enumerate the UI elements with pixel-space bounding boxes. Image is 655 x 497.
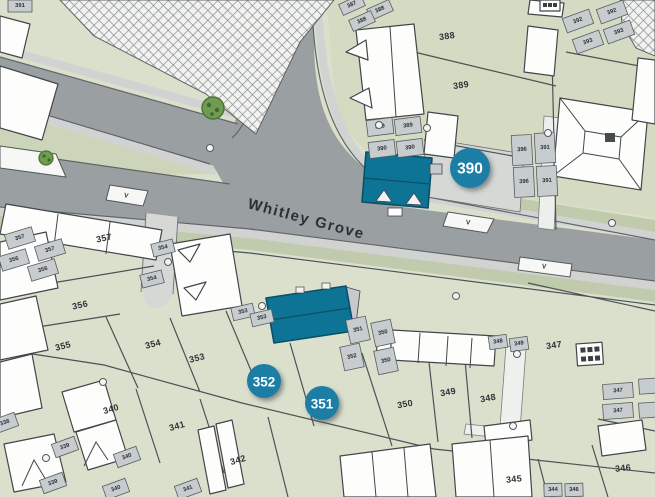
manhole-icon bbox=[510, 423, 517, 430]
manhole-icon bbox=[514, 351, 521, 358]
parking-cell-label: 396 bbox=[511, 134, 533, 165]
parking-cell-label-text: 389 bbox=[403, 122, 414, 129]
parking-cell-label: 347 bbox=[603, 402, 634, 419]
porch bbox=[388, 208, 402, 216]
parking-cell-label-text: 391 bbox=[540, 145, 551, 152]
parking-cell-label: 389 bbox=[394, 116, 422, 135]
manhole-icon bbox=[165, 259, 172, 266]
parking-cell-label: 344 bbox=[544, 483, 562, 497]
badge-label: 390 bbox=[457, 161, 483, 178]
chimney bbox=[605, 133, 615, 142]
manhole-icon bbox=[376, 122, 383, 129]
porch bbox=[296, 287, 304, 293]
bin-store-icon bbox=[576, 342, 603, 366]
parking-cell-label: 349 bbox=[509, 336, 529, 351]
tree-icon bbox=[202, 97, 224, 119]
plot-badge-351[interactable]: 351 bbox=[305, 386, 339, 420]
badge-label: 352 bbox=[253, 375, 276, 390]
parking-cell-label: 390 bbox=[396, 138, 424, 157]
manhole-icon bbox=[259, 303, 266, 310]
plot-badge-352[interactable]: 352 bbox=[247, 364, 281, 398]
parking-cell-label bbox=[639, 402, 655, 418]
manhole-icon bbox=[609, 220, 616, 227]
parking-cell bbox=[639, 402, 655, 418]
parking-cell-label-text: 396 bbox=[517, 147, 528, 154]
building bbox=[424, 112, 458, 158]
bin-store-icon bbox=[540, 0, 560, 11]
parking-cell-label: 391 bbox=[8, 0, 32, 12]
site-plan-canvas: 3913873883883893893903903923923933933963… bbox=[0, 0, 655, 497]
porch bbox=[322, 283, 330, 289]
building bbox=[524, 26, 558, 76]
plot-badge-390[interactable]: 390 bbox=[450, 148, 490, 188]
parking-cell-label bbox=[639, 378, 655, 394]
parking-cell-label-text: 347 bbox=[613, 388, 623, 395]
building bbox=[598, 420, 646, 456]
parking-cell-label-text: 391 bbox=[542, 178, 553, 185]
tree-icon bbox=[39, 151, 53, 165]
manhole-icon bbox=[100, 379, 107, 386]
parking-cell-label-text: 346 bbox=[569, 487, 580, 493]
plot-number-label: 345 bbox=[506, 473, 523, 485]
parking-cell-label: 348 bbox=[488, 334, 508, 349]
parking-cell-label: 396 bbox=[513, 166, 535, 197]
terrace-row bbox=[390, 330, 496, 366]
manhole-icon bbox=[207, 145, 214, 152]
parking-cell-label: 390 bbox=[368, 139, 396, 158]
plot-number-label-text: 346 bbox=[615, 462, 632, 474]
manhole-icon bbox=[43, 455, 50, 462]
manhole-icon bbox=[424, 125, 431, 132]
parking-cell-label-text: 390 bbox=[377, 145, 387, 152]
badge-label: 351 bbox=[311, 397, 334, 412]
parking-cell-label-text: 344 bbox=[548, 487, 559, 493]
parking-cell-label: 347 bbox=[603, 382, 634, 399]
parking-cell-label-text: 390 bbox=[405, 144, 415, 151]
manhole-icon bbox=[453, 293, 460, 300]
parking-cell-label: 391 bbox=[534, 132, 556, 163]
parking-cell-label-text: 347 bbox=[613, 408, 623, 415]
annex bbox=[430, 164, 442, 174]
parking-cell-label-text: 396 bbox=[519, 179, 530, 186]
parking-cell-label-text: 391 bbox=[15, 3, 25, 9]
plot-number-label: 346 bbox=[615, 462, 632, 474]
parking-cell bbox=[639, 378, 655, 394]
parking-cell-label: 346 bbox=[565, 483, 583, 497]
site-plan-map: 3913873883883893893903903923923933933963… bbox=[0, 0, 655, 497]
plot-number-label-text: 345 bbox=[506, 473, 523, 485]
parking-cell-label: 391 bbox=[536, 165, 558, 196]
building bbox=[170, 234, 242, 316]
manhole-icon bbox=[545, 130, 552, 137]
